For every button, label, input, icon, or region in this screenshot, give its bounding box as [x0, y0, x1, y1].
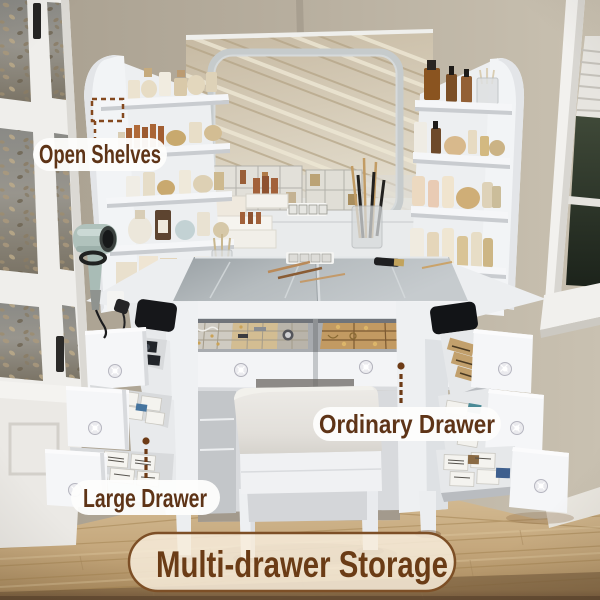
svg-text:Open Shelves: Open Shelves [39, 139, 161, 169]
svg-text:Ordinary Drawer: Ordinary Drawer [319, 409, 495, 439]
svg-text:Large Drawer: Large Drawer [83, 483, 207, 513]
svg-text:Multi-drawer Storage: Multi-drawer Storage [156, 544, 448, 585]
